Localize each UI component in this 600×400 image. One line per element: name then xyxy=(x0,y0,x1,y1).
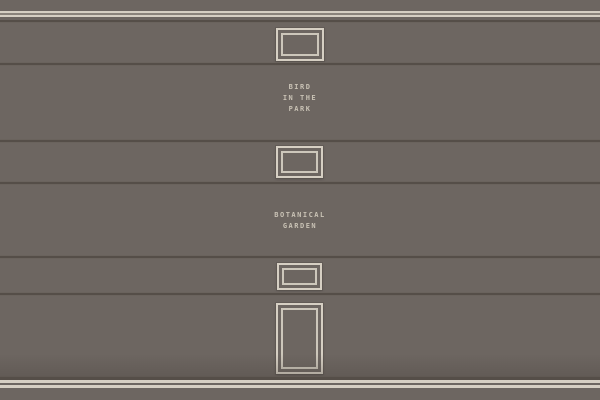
crown-molding xyxy=(0,11,600,17)
label-line: BOTANICAL xyxy=(0,210,600,221)
label-line: GARDEN xyxy=(0,221,600,232)
panel-separator xyxy=(0,255,600,259)
small-picture-frame-middle[interactable] xyxy=(276,146,323,178)
artwork-label-botanical-garden: BOTANICAL GARDEN xyxy=(0,210,600,232)
small-picture-frame-top[interactable] xyxy=(276,28,324,61)
floor-shadow xyxy=(0,354,600,376)
frame-inner-border xyxy=(281,151,318,173)
label-line: BIRD xyxy=(0,82,600,93)
small-picture-frame-bottom[interactable] xyxy=(277,263,322,290)
label-line: IN THE xyxy=(0,93,600,104)
panel-separator xyxy=(0,62,600,66)
artwork-label-bird-in-the-park: BIRD IN THE PARK xyxy=(0,82,600,115)
panel-separator xyxy=(0,181,600,185)
label-line: PARK xyxy=(0,104,600,115)
panel-separator xyxy=(0,292,600,296)
baseboard-molding xyxy=(0,380,600,388)
panel-separator xyxy=(0,139,600,143)
frame-inner-border xyxy=(282,268,317,285)
gallery-wall: BIRD IN THE PARK BOTANICAL GARDEN xyxy=(0,0,600,400)
frame-inner-border xyxy=(281,33,319,56)
panel-top-edge xyxy=(0,20,600,23)
